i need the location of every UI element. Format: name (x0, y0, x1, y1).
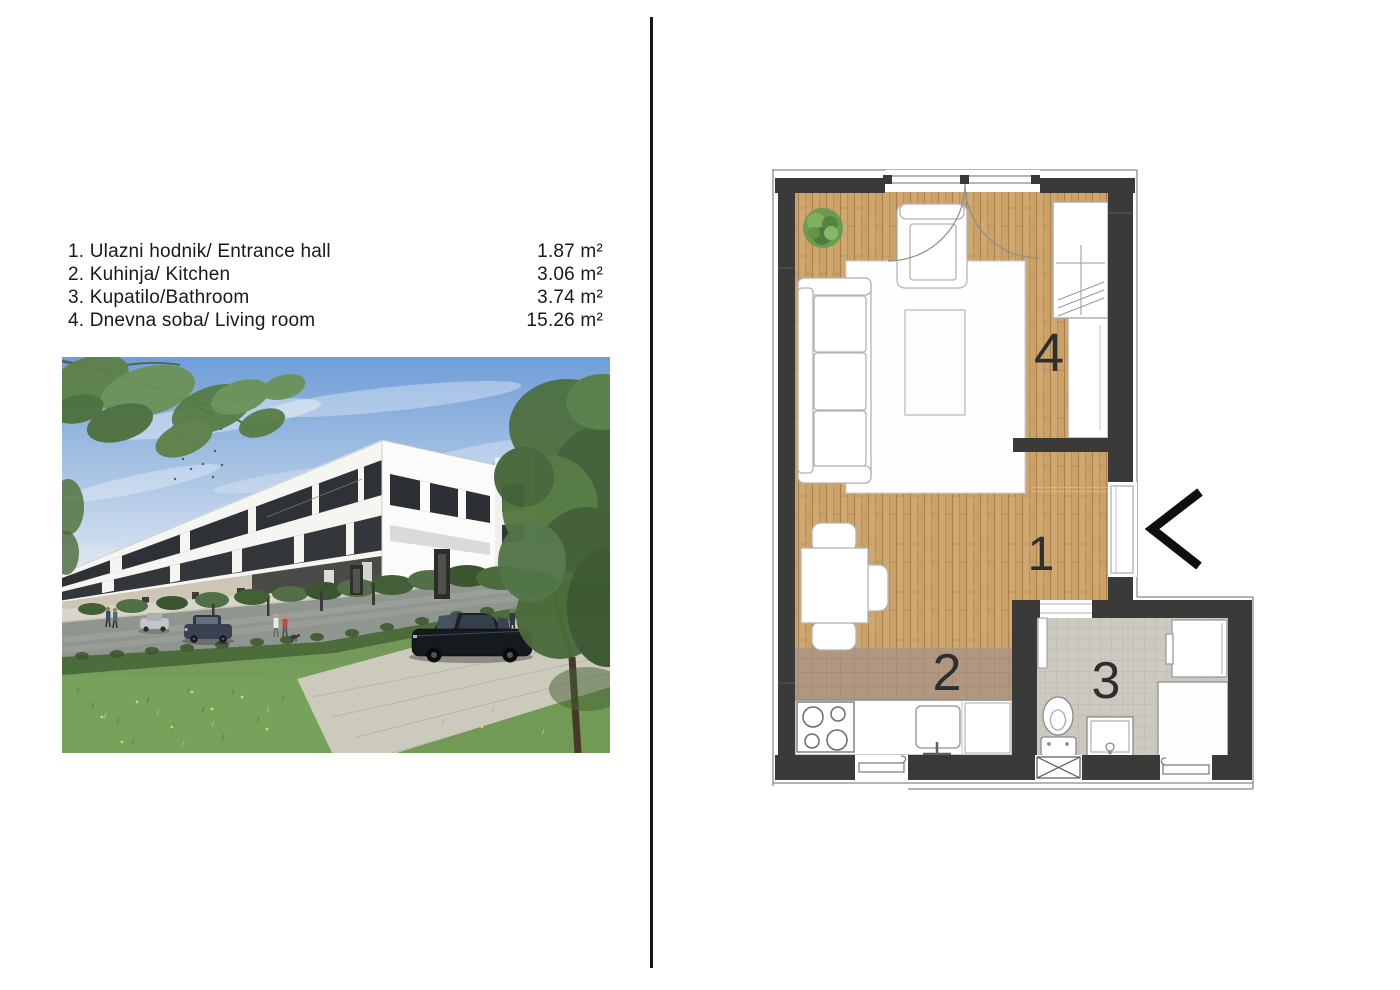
toilet (1041, 697, 1076, 756)
room-label: 1. Ulazni hodnik/ Entrance hall (68, 240, 331, 263)
page: { "room_list": { "items": [ {"label": "1… (0, 0, 1400, 990)
room-list-item: 2. Kuhinja/ Kitchen 3.06 m² (68, 263, 603, 286)
room-list: 1. Ulazni hodnik/ Entrance hall 1.87 m² … (68, 240, 603, 332)
room-label: 3. Kupatilo/Bathroom (68, 286, 249, 309)
room-label: 4. Dnevna soba/ Living room (68, 309, 315, 332)
room-area: 3.06 m² (537, 263, 603, 286)
entrance-door (1108, 482, 1137, 577)
room-area: 3.74 m² (537, 286, 603, 309)
bathroom-sink (1166, 620, 1227, 677)
label-kitchen: 2 (933, 644, 962, 702)
shower (1158, 682, 1228, 757)
vertical-divider (650, 17, 653, 968)
room-list-item: 3. Kupatilo/Bathroom 3.74 m² (68, 286, 603, 309)
washing-machine (1087, 717, 1133, 756)
room-area: 1.87 m² (537, 240, 603, 263)
coffee-table (905, 310, 965, 415)
room-label: 2. Kuhinja/ Kitchen (68, 263, 230, 286)
label-living-room: 4 (1034, 323, 1064, 383)
armchair (897, 204, 967, 288)
label-bathroom: 3 (1092, 652, 1121, 710)
label-entrance-hall: 1 (1028, 528, 1055, 581)
entrance-arrow-icon (1152, 492, 1200, 566)
floor-plan: 4 1 2 3 (770, 158, 1262, 798)
sofa (798, 278, 871, 483)
kitchen-sink (916, 706, 960, 748)
plant (803, 208, 843, 248)
room-area: 15.26 m² (526, 309, 603, 332)
room-list-item: 1. Ulazni hodnik/ Entrance hall 1.87 m² (68, 240, 603, 263)
building-photo (62, 357, 610, 753)
room-list-item: 4. Dnevna soba/ Living room 15.26 m² (68, 309, 603, 332)
